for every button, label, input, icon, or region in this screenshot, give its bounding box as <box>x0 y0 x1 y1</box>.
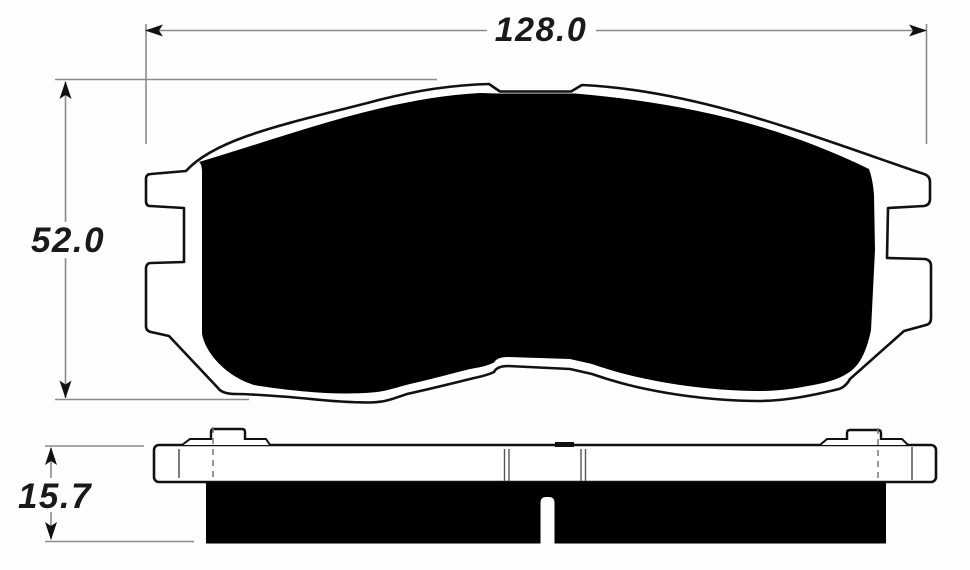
svg-text:15.7: 15.7 <box>18 477 92 516</box>
svg-text:128.0: 128.0 <box>495 11 588 49</box>
svg-text:52.0: 52.0 <box>31 221 105 260</box>
